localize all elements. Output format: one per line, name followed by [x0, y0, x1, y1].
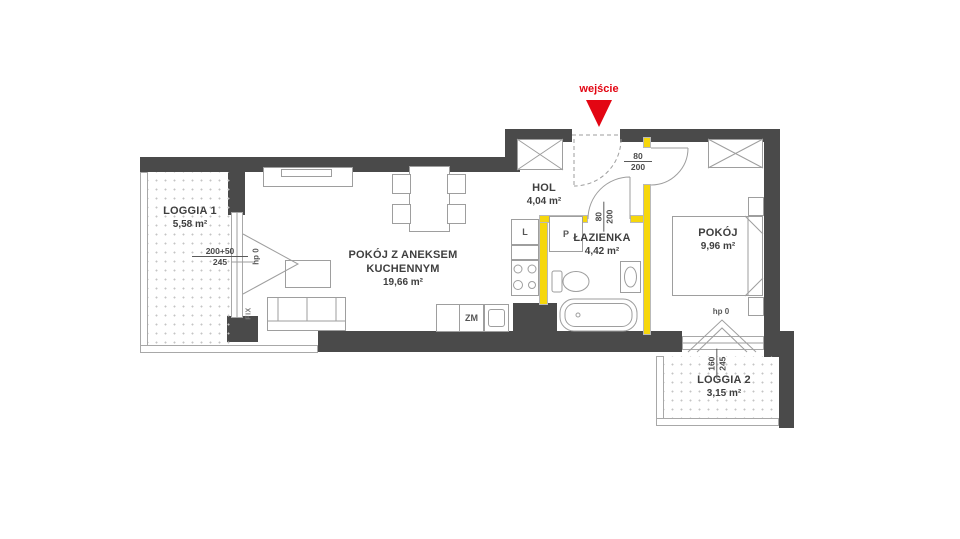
loggia1-bottom-wall — [140, 345, 318, 353]
entrance-arrow-icon — [586, 100, 612, 127]
dim-loggia2-window: 160 245 — [706, 349, 727, 379]
room-name: HOL — [504, 182, 584, 196]
bedroom-door-arc — [651, 148, 688, 185]
toilet — [552, 271, 589, 292]
entrance-label: wejście — [568, 83, 630, 95]
dim-numerator: 200+50 — [192, 246, 248, 257]
chair — [447, 174, 466, 194]
dim-numerator: 80 — [624, 151, 652, 162]
chair — [447, 204, 466, 224]
kitchen-counter — [511, 245, 539, 260]
dim-bedroom-door: 80 200 — [624, 151, 652, 172]
dim-denominator: 245 — [718, 349, 728, 379]
dining-table — [409, 166, 450, 232]
coffee-table — [285, 260, 331, 288]
wall-sw-corner — [227, 316, 258, 342]
nightstand — [748, 297, 764, 316]
wall-se-corner — [764, 331, 794, 357]
room-area: 4,42 m² — [558, 246, 646, 259]
nightstand — [748, 197, 764, 216]
dim-hp-left: hp 0 — [252, 243, 261, 271]
dim-fix: FIX — [246, 301, 253, 327]
room-area: 9,96 m² — [680, 241, 756, 254]
room-label-loggia1: LOGGIA 1 5,58 m² — [148, 205, 232, 231]
wall-bottom — [318, 331, 682, 352]
wall-loggia2-right — [779, 357, 794, 428]
room-label-hol: HOL 4,04 m² — [504, 182, 584, 208]
dim-bathroom-door: 80 200 — [593, 202, 614, 232]
bathtub — [560, 299, 637, 331]
wardrobe — [517, 139, 563, 170]
dishwasher-label: ZM — [465, 313, 478, 323]
loggia2-bottom-wall — [656, 418, 779, 426]
wall-shaft — [513, 303, 557, 333]
stove — [511, 260, 539, 296]
dim-denominator: 200 — [605, 202, 615, 232]
dim-numerator: 80 — [593, 202, 604, 232]
partition-bath-bedroom — [643, 184, 651, 335]
loggia1-left-wall — [140, 172, 148, 353]
room-label-bedroom: POKÓJ 9,96 m² — [680, 227, 756, 253]
kitchen-cabinet — [436, 304, 460, 332]
fridge: L — [511, 219, 539, 245]
dim-loggia1-window: 200+50 245 — [192, 246, 248, 267]
room-name: LOGGIA 1 — [148, 205, 232, 219]
room-name: POKÓJ Z ANEKSEM KUCHENNYM — [339, 249, 467, 277]
chair — [392, 174, 411, 194]
dim-hp-right: hp 0 — [701, 307, 741, 316]
floor-plan: L ZM P — [0, 0, 960, 539]
dim-numerator: 160 — [706, 349, 717, 379]
sofa — [267, 297, 346, 331]
room-area: 4,04 m² — [504, 196, 584, 209]
dim-denominator: 245 — [192, 257, 248, 267]
room-area: 19,66 m² — [339, 277, 467, 290]
room-label-bathroom: ŁAZIENKA 4,42 m² — [558, 232, 646, 258]
fridge-label: L — [522, 227, 528, 237]
dim-denominator: 200 — [624, 162, 652, 172]
partition-kitchen-bath — [539, 215, 548, 305]
room-name: POKÓJ — [680, 227, 756, 241]
washbasin — [620, 261, 641, 293]
room-label-living: POKÓJ Z ANEKSEM KUCHENNYM 19,66 m² — [339, 249, 467, 289]
wall-right — [764, 129, 780, 357]
tv — [281, 169, 332, 177]
room-area: 3,15 m² — [682, 388, 766, 401]
room-area: 5,58 m² — [148, 219, 232, 232]
loggia2-left-wall — [656, 356, 664, 426]
entrance-door-arc — [572, 135, 621, 186]
chair — [392, 204, 411, 224]
room-name: ŁAZIENKA — [558, 232, 646, 246]
wardrobe — [708, 139, 763, 168]
partition-bedroom-stub — [643, 137, 651, 148]
sink-basin — [488, 309, 505, 327]
dishwasher: ZM — [459, 304, 484, 332]
